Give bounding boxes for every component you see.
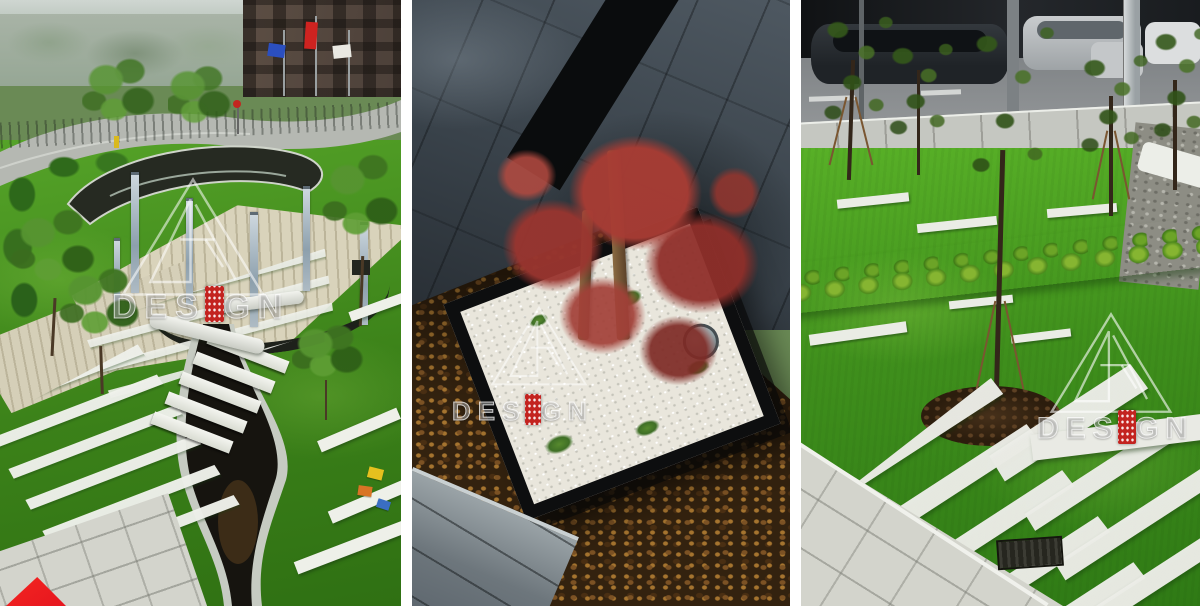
stop-sign [233,100,241,108]
red-maple-canopy [454,88,784,438]
young-tree [1145,10,1200,170]
tree [292,322,370,384]
white-flag [332,44,351,59]
orange-pennant-flag [357,485,372,497]
steel-pillar [303,186,310,291]
photo-panel-lawn-parking: DESIGN [801,0,1200,606]
steel-pillar [250,212,258,327]
brick-building [243,0,401,97]
panel-divider [401,0,412,606]
red-flag [304,22,318,50]
tree-trunk [325,380,327,420]
triptych-collage: DESIGN DESIGN [0,0,1200,606]
young-tree [951,0,1071,220]
tree [58,258,150,350]
blue-flag [267,43,286,58]
tree [168,60,234,134]
tree [322,136,401,261]
photo-panel-aerial-park: DESIGN [0,0,401,606]
tree [82,50,162,135]
steel-pillar [186,198,193,305]
drain-grate [996,536,1064,571]
panel-divider [790,0,801,606]
photo-panel-maple-planter: DESIGN [412,0,790,606]
